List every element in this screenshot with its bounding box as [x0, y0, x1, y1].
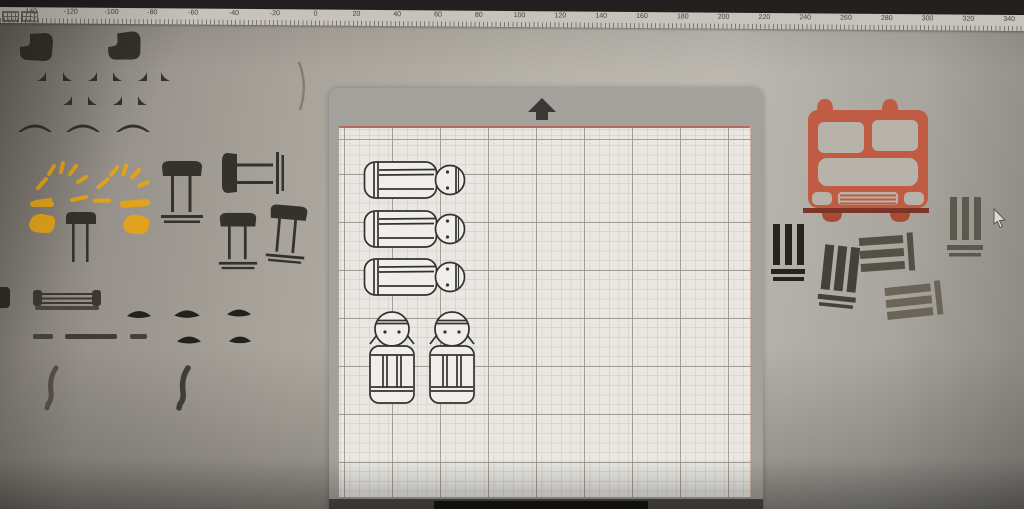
ruler-label: -120: [64, 9, 78, 17]
peg-doll-standing[interactable]: [370, 312, 414, 403]
cut-shape-lens[interactable]: [175, 333, 203, 345]
cut-shape-corner-triangle[interactable]: [137, 71, 148, 82]
cut-shape-lens[interactable]: [172, 307, 202, 319]
ruler-label: -60: [188, 9, 198, 17]
peg-doll-lying[interactable]: [365, 259, 465, 295]
cut-shape-corner-triangle[interactable]: [87, 95, 98, 106]
cut-shape-lens[interactable]: [125, 308, 153, 319]
cut-shape-table[interactable]: [62, 210, 100, 262]
ruler-label: 240: [799, 14, 811, 22]
cut-shape-stripe-group[interactable]: [815, 244, 865, 310]
peg-doll-lying[interactable]: [365, 162, 465, 198]
ruler-label: 140: [595, 13, 607, 21]
ruler-label: 180: [677, 13, 689, 21]
cut-shape-table[interactable]: [215, 211, 261, 271]
cut-shape-dash-bar[interactable]: [130, 334, 147, 339]
ruler-label: -80: [147, 9, 157, 17]
cut-shape-corner-triangle[interactable]: [112, 71, 123, 82]
ruler-label: -20: [270, 10, 280, 18]
cut-shape-dash-bar[interactable]: [33, 334, 53, 339]
ruler-label: 160: [636, 13, 648, 21]
cut-shape-corner-triangle[interactable]: [62, 71, 73, 82]
cut-shape-corner-triangle[interactable]: [36, 71, 47, 82]
cut-shape-corner-triangle[interactable]: [112, 95, 123, 106]
cut-shape-table[interactable]: [157, 159, 207, 225]
cut-shape-paint-blob[interactable]: [27, 213, 57, 235]
ruler-label: 120: [555, 12, 567, 20]
cut-shape-lens[interactable]: [225, 306, 253, 318]
cut-shape-smile-arc[interactable]: [64, 122, 102, 133]
cut-shape-stripe-group[interactable]: [947, 197, 985, 257]
cut-shape-corner-triangle[interactable]: [87, 71, 98, 82]
cut-shape-stripe-group[interactable]: [884, 279, 946, 325]
cut-shape-stripe-group[interactable]: [771, 224, 807, 282]
cut-shape-dash-bar[interactable]: [65, 334, 117, 339]
cut-shape-bracket[interactable]: [44, 366, 60, 410]
ruler-label: 340: [1003, 16, 1015, 24]
ruler-label: 280: [881, 15, 893, 23]
load-arrow-icon: [528, 98, 556, 120]
ruler-label: 40: [393, 11, 401, 19]
cut-shape-fire-truck-front[interactable]: [800, 96, 932, 226]
mat-design-objects: [339, 126, 751, 497]
cut-shape-stripe-group[interactable]: [859, 230, 920, 278]
ruler-label: -40: [229, 10, 239, 18]
app-canvas: -140-120-100-80-60-40-200204060801001201…: [0, 0, 1024, 509]
cut-shape-sun-rays[interactable]: [32, 160, 90, 206]
cut-shape-paint-blob[interactable]: [119, 213, 152, 237]
cut-shape-smile-arc[interactable]: [114, 122, 152, 133]
cut-shape-table-rotated[interactable]: [220, 148, 286, 198]
ruler-label: 20: [352, 11, 360, 19]
ruler-label: 100: [514, 12, 526, 20]
ruler-label: 200: [718, 14, 730, 22]
ruler-label: 220: [759, 14, 771, 22]
ruler-grid-icon: [2, 11, 19, 22]
mouse-cursor: [992, 208, 1008, 228]
cut-shape-highlight-bar[interactable]: [30, 201, 54, 207]
cut-shape-bracket[interactable]: [296, 60, 310, 112]
ruler-label: -100: [105, 9, 119, 17]
cut-shape-corner-triangle[interactable]: [137, 95, 148, 106]
cut-shape-bracket[interactable]: [176, 366, 192, 410]
cut-shape-table[interactable]: [261, 201, 312, 267]
cut-shape-corner-triangle[interactable]: [62, 95, 73, 106]
ruler-label: 0: [314, 10, 318, 18]
taskbar-hint: [434, 501, 648, 509]
cut-shape-hair-blob[interactable]: [107, 31, 143, 63]
ruler-label: 80: [475, 12, 483, 20]
cut-shape-dash-bar[interactable]: [35, 306, 99, 310]
cut-shape-lens[interactable]: [227, 333, 253, 345]
ruler-label: -140: [23, 8, 37, 16]
cut-shape-hair-blob[interactable]: [20, 33, 54, 63]
ruler-label: 60: [434, 11, 442, 19]
cut-shape-corner-triangle[interactable]: [160, 71, 171, 82]
peg-doll-standing[interactable]: [430, 312, 474, 403]
cutting-mat[interactable]: [329, 88, 763, 509]
cut-shape-smile-arc[interactable]: [16, 122, 54, 133]
ruler-label: 300: [922, 15, 934, 23]
cut-shape-edge-fragment[interactable]: [0, 287, 10, 308]
ruler-label: 260: [840, 15, 852, 23]
ruler-label: 320: [963, 16, 975, 24]
peg-doll-lying[interactable]: [365, 211, 465, 247]
